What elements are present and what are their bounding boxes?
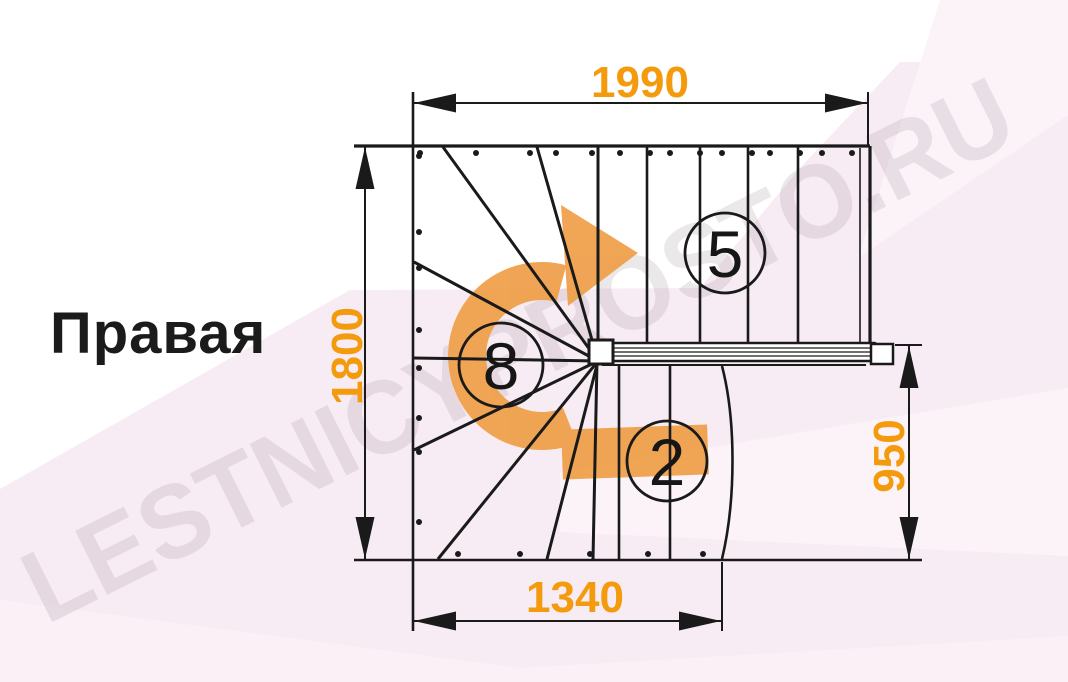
step-count-winder: 8 [483, 329, 520, 403]
dim-top-value: 1990 [591, 58, 689, 107]
staircase-plan-page: LESTNICYPROSTO.RU [0, 0, 1068, 682]
dim-left-value: 1800 [323, 307, 372, 405]
dim-right-value: 950 [865, 419, 914, 492]
landing-beam [589, 340, 893, 365]
staircase-plan-drawing: LESTNICYPROSTO.RU [0, 0, 1068, 682]
newel-post-right [871, 344, 893, 364]
newel-post-center [589, 340, 613, 364]
dim-bottom-value: 1340 [526, 573, 624, 622]
step-count-upper: 5 [707, 217, 744, 291]
page-title: Правая [50, 301, 266, 366]
rotation-arrow-tail [561, 424, 709, 479]
step-count-lower: 2 [649, 425, 686, 499]
